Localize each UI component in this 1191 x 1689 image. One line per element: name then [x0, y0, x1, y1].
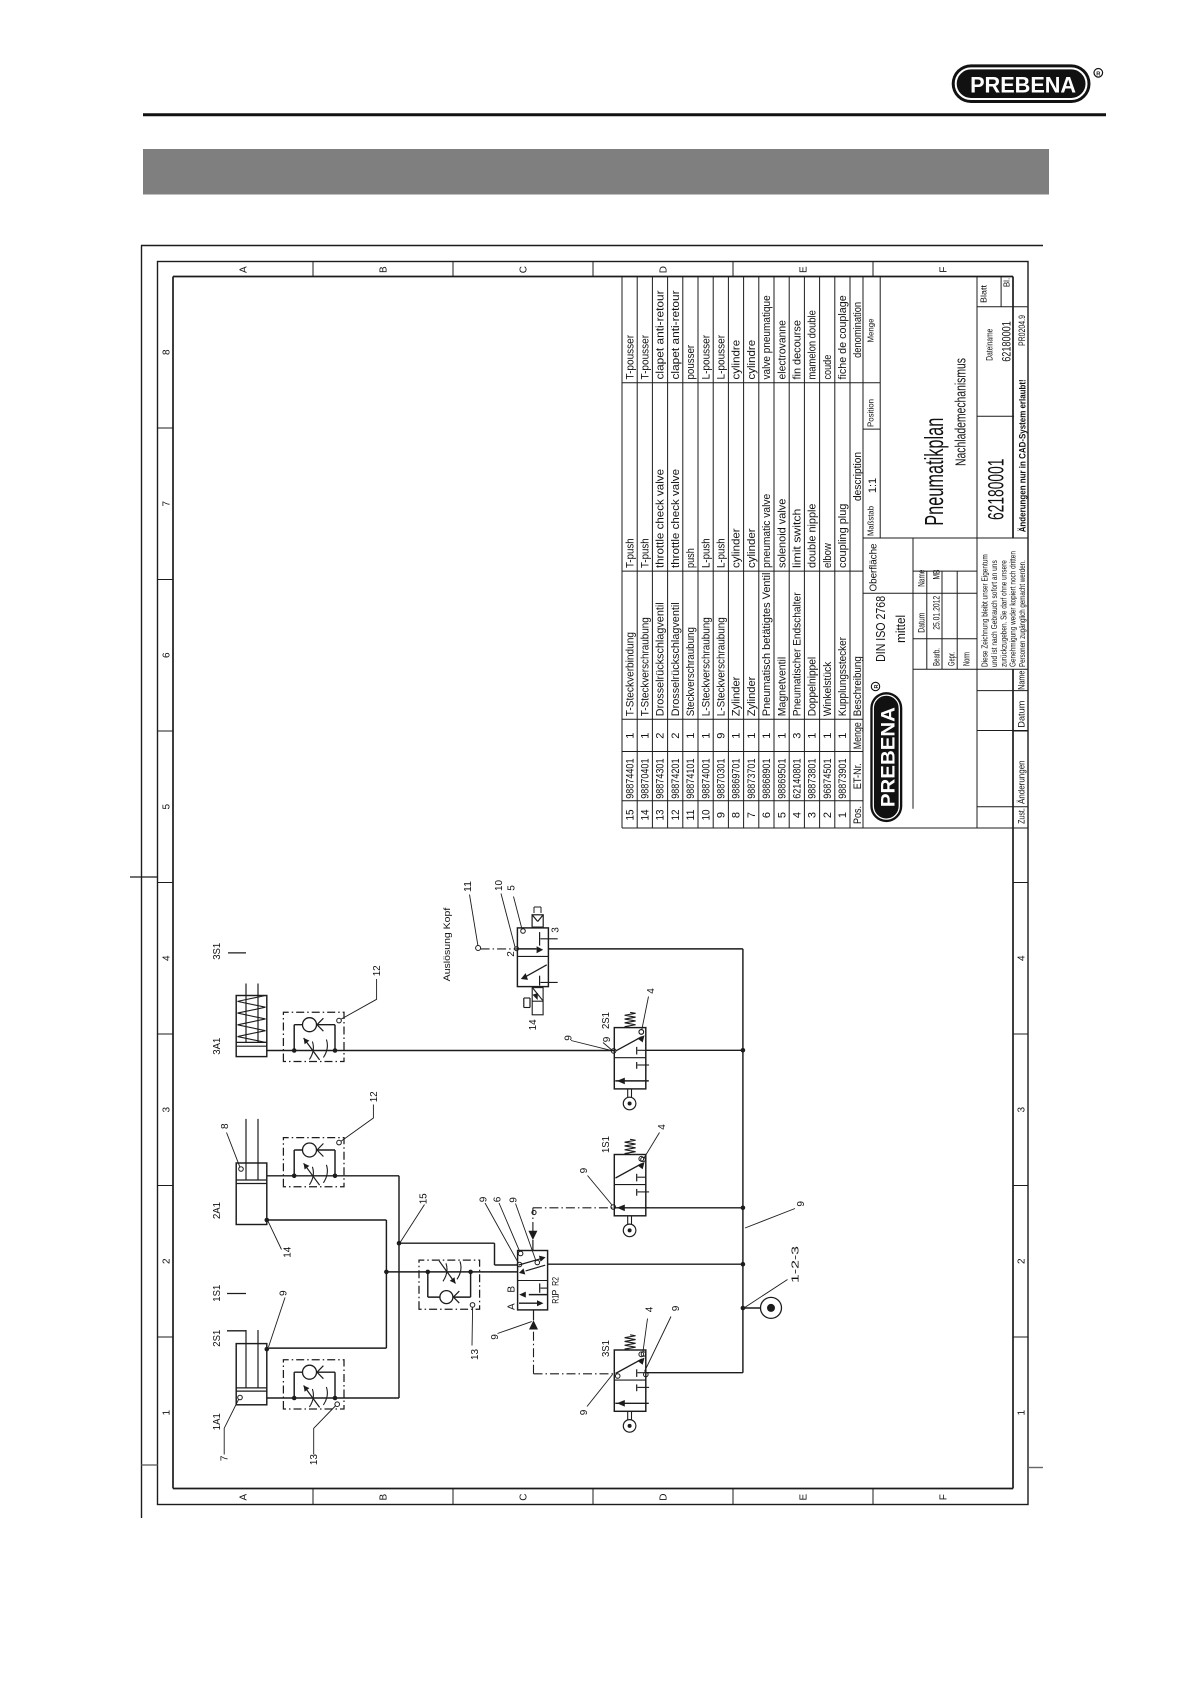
svg-text:1: 1: [746, 733, 758, 739]
svg-text:9: 9: [716, 812, 728, 818]
svg-text:3S1: 3S1: [212, 942, 223, 959]
svg-text:2: 2: [655, 733, 667, 739]
svg-text:15: 15: [624, 810, 636, 821]
svg-text:62180001: 62180001: [984, 459, 1009, 521]
svg-text:1: 1: [837, 812, 849, 818]
svg-text:description: description: [852, 452, 864, 501]
svg-text:3: 3: [807, 812, 819, 818]
svg-text:13: 13: [655, 810, 667, 821]
svg-text:Änderungen nur in CAD-System e: Änderungen nur in CAD-System erlaubt!: [1018, 379, 1028, 532]
svg-text:1: 1: [700, 733, 712, 739]
svg-text:Zylinder: Zylinder: [731, 676, 743, 716]
svg-text:D: D: [659, 266, 670, 273]
svg-text:9: 9: [579, 1409, 590, 1415]
svg-text:98873901: 98873901: [837, 759, 849, 799]
svg-text:Drosselrückschlagventil: Drosselrückschlagventil: [655, 602, 667, 716]
svg-text:98873801: 98873801: [807, 759, 819, 799]
svg-text:R: R: [874, 684, 880, 688]
svg-text:T-Steckverbindung: T-Steckverbindung: [624, 632, 636, 716]
svg-text:14: 14: [283, 1246, 294, 1257]
svg-text:denomination: denomination: [852, 302, 864, 358]
svg-text:A: A: [507, 1303, 518, 1310]
svg-text:clapet anti-retour: clapet anti-retour: [655, 290, 667, 379]
svg-text:4: 4: [161, 955, 172, 961]
svg-text:E: E: [799, 1494, 810, 1501]
svg-text:15: 15: [419, 1193, 430, 1204]
svg-text:Datum: Datum: [917, 613, 927, 633]
svg-text:2: 2: [822, 812, 834, 818]
svg-text:98870301: 98870301: [716, 759, 728, 799]
svg-text:1: 1: [161, 1410, 172, 1416]
svg-text:14: 14: [640, 810, 652, 821]
svg-text:96874501: 96874501: [822, 759, 834, 799]
svg-text:12: 12: [369, 1091, 380, 1102]
svg-text:1: 1: [822, 733, 834, 739]
svg-text:2: 2: [506, 951, 517, 957]
svg-text:Name: Name: [917, 570, 927, 587]
svg-text:coude: coude: [822, 355, 834, 380]
svg-text:cylindre: cylindre: [731, 340, 743, 380]
svg-text:1: 1: [640, 733, 652, 739]
svg-text:Position: Position: [866, 399, 876, 427]
svg-text:T-push: T-push: [640, 538, 652, 568]
svg-text:Pneumatisch betätigtes Ventil: Pneumatisch betätigtes Ventil: [761, 573, 773, 717]
svg-text:zurückzugeben. Sie darf ohne u: zurückzugeben. Sie darf ohne unsere: [999, 560, 1008, 667]
svg-text:limit switch: limit switch: [792, 509, 804, 568]
svg-text:9: 9: [602, 1036, 613, 1042]
svg-text:1S1: 1S1: [212, 1284, 223, 1301]
svg-text:throttle check valve: throttle check valve: [655, 469, 667, 568]
svg-text:2: 2: [161, 1258, 172, 1264]
svg-text:Menge: Menge: [866, 318, 876, 342]
svg-text:7: 7: [161, 501, 172, 507]
svg-text:L-pousser: L-pousser: [716, 335, 728, 380]
svg-text:Pneumatischer Endschalter: Pneumatischer Endschalter: [792, 592, 804, 716]
svg-text:9: 9: [509, 1197, 520, 1203]
svg-text:Bl.: Bl.: [1003, 278, 1012, 287]
svg-text:Winkelstück: Winkelstück: [822, 661, 834, 716]
svg-text:T-pousser: T-pousser: [640, 335, 652, 380]
svg-text:Nachlademechanismus: Nachlademechanismus: [953, 358, 970, 466]
svg-text:clapet anti-retour: clapet anti-retour: [670, 290, 682, 379]
svg-text:25.01.2012: 25.01.2012: [932, 596, 942, 630]
svg-text:9: 9: [716, 733, 728, 739]
svg-text:4: 4: [645, 1306, 656, 1312]
svg-text:T-pousser: T-pousser: [624, 335, 636, 380]
svg-text:62180001: 62180001: [1000, 321, 1014, 362]
svg-text:A: A: [239, 1494, 250, 1501]
svg-text:2: 2: [670, 733, 682, 739]
svg-text:F: F: [939, 267, 950, 273]
svg-text:6: 6: [161, 652, 172, 658]
svg-text:4: 4: [646, 988, 657, 994]
svg-text:cylinder: cylinder: [731, 528, 743, 568]
svg-text:und ist nach Gebrauch sofort a: und ist nach Gebrauch sofort an uns: [990, 560, 999, 667]
svg-text:98874401: 98874401: [624, 759, 636, 799]
svg-text:PR0204.9: PR0204.9: [1017, 315, 1028, 346]
svg-text:E: E: [799, 266, 810, 273]
svg-text:C: C: [519, 266, 530, 273]
svg-text:4: 4: [792, 812, 804, 818]
svg-text:Pneumatikplan: Pneumatikplan: [919, 418, 949, 526]
svg-text:98874001: 98874001: [700, 759, 712, 799]
svg-text:5: 5: [507, 885, 518, 891]
svg-text:throttle check valve: throttle check valve: [670, 469, 682, 568]
svg-text:mittel: mittel: [893, 615, 908, 643]
svg-text:L-pousser: L-pousser: [700, 335, 712, 380]
svg-text:2S1: 2S1: [601, 1012, 612, 1029]
svg-text:1: 1: [624, 733, 636, 739]
svg-text:A: A: [239, 266, 250, 273]
svg-text:DIN ISO 2768: DIN ISO 2768: [873, 596, 888, 662]
svg-text:5: 5: [776, 812, 788, 818]
svg-text:3: 3: [1017, 1107, 1028, 1113]
svg-text:fiche de couplage: fiche de couplage: [837, 295, 849, 379]
svg-text:B: B: [379, 1494, 390, 1501]
svg-text:9: 9: [796, 1201, 807, 1207]
svg-text:1A1: 1A1: [212, 1413, 223, 1430]
svg-text:solenoid valve: solenoid valve: [776, 499, 788, 568]
svg-text:Dateiname: Dateiname: [985, 329, 995, 361]
svg-text:98873701: 98873701: [746, 759, 758, 799]
svg-text:PREBENA: PREBENA: [878, 707, 899, 807]
svg-text:1: 1: [761, 733, 773, 739]
svg-text:98874101: 98874101: [685, 759, 697, 799]
svg-text:3S1: 3S1: [601, 1340, 612, 1357]
svg-text:8: 8: [161, 349, 172, 355]
svg-text:2: 2: [1017, 1258, 1028, 1264]
svg-text:10: 10: [700, 810, 712, 821]
svg-text:cylinder: cylinder: [746, 528, 758, 568]
svg-text:9: 9: [479, 1196, 490, 1202]
svg-text:Name: Name: [1017, 671, 1028, 690]
svg-text:Blatt: Blatt: [980, 284, 989, 303]
svg-text:double nipple: double nipple: [807, 504, 819, 568]
svg-text:Diese Zeichnung bleibt unser E: Diese Zeichnung bleibt unser Eigentum: [981, 554, 990, 667]
svg-text:11: 11: [685, 810, 697, 821]
svg-text:98874301: 98874301: [655, 759, 667, 799]
svg-text:Drosselrückschlagventil: Drosselrückschlagventil: [670, 602, 682, 716]
svg-text:98869701: 98869701: [731, 759, 743, 799]
svg-text:Gepr.: Gepr.: [947, 652, 957, 666]
svg-text:T-push: T-push: [624, 538, 636, 568]
svg-text:pousser: pousser: [685, 345, 697, 380]
svg-text:Zust.: Zust.: [1017, 808, 1028, 824]
svg-text:98870401: 98870401: [640, 759, 652, 799]
svg-text:F: F: [939, 1494, 950, 1500]
svg-text:98869501: 98869501: [776, 759, 788, 799]
svg-text:push: push: [685, 548, 697, 568]
svg-text:3: 3: [550, 927, 561, 933]
svg-text:Kupplungsstecker: Kupplungsstecker: [837, 637, 849, 716]
svg-text:electrovanne: electrovanne: [776, 320, 788, 379]
svg-text:14: 14: [528, 1019, 539, 1030]
svg-text:Menge: Menge: [852, 722, 864, 749]
svg-text:8: 8: [731, 812, 743, 818]
svg-text:13: 13: [309, 1454, 320, 1465]
svg-text:1: 1: [685, 733, 697, 739]
svg-text:Bearb.: Bearb.: [932, 648, 942, 666]
svg-text:elbow: elbow: [822, 543, 834, 568]
svg-text:6: 6: [761, 812, 773, 818]
svg-text:R2: R2: [550, 1277, 560, 1286]
svg-text:1: 1: [1017, 1410, 1028, 1416]
svg-text:7: 7: [220, 1455, 231, 1461]
svg-text:B: B: [379, 266, 390, 273]
svg-text:valve pneumatique: valve pneumatique: [761, 295, 773, 379]
svg-text:9: 9: [671, 1305, 682, 1311]
svg-text:mamelon double: mamelon double: [807, 310, 819, 379]
svg-text:P: P: [550, 1290, 560, 1296]
svg-text:Datum: Datum: [1017, 701, 1028, 728]
svg-text:3: 3: [792, 733, 804, 739]
svg-text:2S1: 2S1: [212, 1329, 223, 1346]
svg-text:10: 10: [494, 880, 505, 891]
svg-text:5: 5: [161, 804, 172, 810]
svg-text:9: 9: [579, 1167, 590, 1173]
svg-text:cylindre: cylindre: [746, 340, 758, 380]
svg-text:Genehmigung weder kopiert noch: Genehmigung weder kopiert noch dritten: [1009, 551, 1018, 667]
svg-text:11: 11: [463, 881, 474, 892]
svg-text:Änderungen: Änderungen: [1017, 760, 1028, 804]
svg-text:9: 9: [279, 1290, 290, 1296]
svg-text:98868901: 98868901: [761, 759, 773, 799]
svg-text:7: 7: [746, 812, 758, 818]
svg-text:1:1: 1:1: [867, 478, 879, 493]
svg-text:12: 12: [372, 965, 383, 976]
svg-text:2A1: 2A1: [212, 1202, 223, 1219]
svg-text:L-push: L-push: [700, 538, 712, 568]
svg-text:8: 8: [220, 1123, 231, 1129]
svg-text:L-push: L-push: [716, 538, 728, 568]
svg-text:L-Steckverschraubung: L-Steckverschraubung: [700, 617, 712, 716]
svg-text:MB: MB: [932, 570, 942, 580]
svg-text:Maßstab: Maßstab: [866, 506, 876, 536]
svg-text:1S1: 1S1: [601, 1136, 612, 1153]
svg-text:1: 1: [837, 733, 849, 739]
svg-text:Steckverschraubung: Steckverschraubung: [685, 627, 697, 716]
svg-text:PREBENA: PREBENA: [970, 72, 1076, 97]
svg-text:B: B: [507, 1286, 518, 1293]
svg-text:C: C: [519, 1494, 530, 1501]
svg-text:L-Steckverschraubung: L-Steckverschraubung: [716, 617, 728, 716]
svg-text:Doppelnippel: Doppelnippel: [807, 657, 819, 716]
svg-text:Pos.: Pos.: [852, 806, 864, 824]
svg-text:ET-Nr.: ET-Nr.: [852, 763, 864, 789]
svg-text:D: D: [659, 1494, 670, 1501]
svg-text:Magnetventil: Magnetventil: [776, 657, 788, 716]
svg-text:1: 1: [776, 733, 788, 739]
svg-text:6: 6: [493, 1196, 504, 1202]
svg-text:fin decourse: fin decourse: [792, 320, 804, 379]
svg-text:1-2-3: 1-2-3: [791, 1245, 802, 1283]
svg-text:12: 12: [670, 810, 682, 821]
svg-text:1: 1: [731, 733, 743, 739]
svg-text:pneumatic valve: pneumatic valve: [761, 494, 773, 568]
svg-text:62140801: 62140801: [792, 759, 804, 799]
svg-text:13: 13: [470, 1349, 481, 1360]
svg-text:Auslösung Kopf: Auslösung Kopf: [442, 907, 453, 981]
svg-text:Oberfläche: Oberfläche: [869, 543, 880, 591]
svg-text:9: 9: [490, 1334, 501, 1340]
svg-text:3A1: 3A1: [212, 1037, 223, 1054]
svg-text:T-Steckverschraubung: T-Steckverschraubung: [640, 617, 652, 716]
svg-text:Zylinder: Zylinder: [746, 676, 758, 716]
svg-text:Personen zugänglich gemacht we: Personen zugänglich gemacht werden.: [1018, 560, 1027, 667]
svg-text:4: 4: [657, 1124, 668, 1130]
svg-text:Beschreibung: Beschreibung: [852, 656, 864, 716]
svg-text:Norm: Norm: [962, 652, 972, 666]
svg-text:98874201: 98874201: [670, 759, 682, 799]
svg-text:4: 4: [1017, 955, 1028, 961]
svg-text:3: 3: [161, 1107, 172, 1113]
svg-text:1: 1: [807, 733, 819, 739]
svg-text:coupling plug: coupling plug: [837, 504, 849, 568]
svg-text:9: 9: [563, 1035, 574, 1041]
